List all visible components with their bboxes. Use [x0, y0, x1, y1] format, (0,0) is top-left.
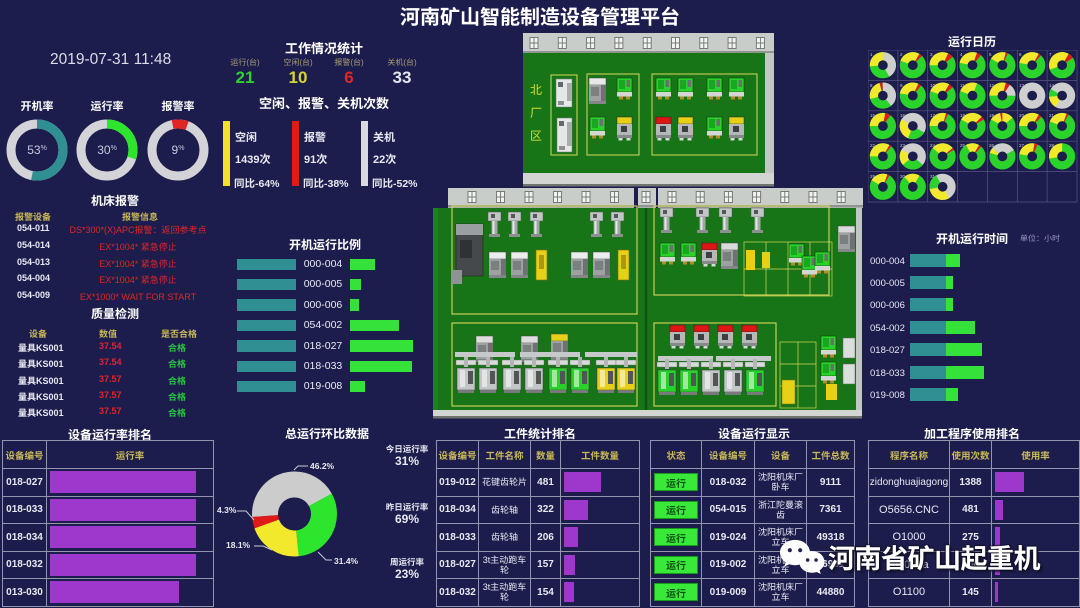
svg-text:21: 21 — [1049, 113, 1055, 118]
svg-text:24: 24 — [930, 143, 936, 148]
svg-text:9: 9 — [900, 83, 903, 88]
svg-text:12: 12 — [989, 83, 995, 88]
svg-text:2: 2 — [900, 52, 903, 57]
svg-text:10: 10 — [930, 83, 936, 88]
svg-text:7: 7 — [1049, 52, 1052, 57]
svg-text:4: 4 — [960, 52, 963, 57]
svg-text:厂: 厂 — [530, 106, 542, 120]
svg-text:北: 北 — [530, 83, 542, 97]
svg-text:区: 区 — [530, 129, 542, 143]
svg-text:5: 5 — [989, 52, 992, 57]
svg-text:13: 13 — [1019, 83, 1025, 88]
svg-text:11: 11 — [960, 83, 965, 88]
svg-text:25: 25 — [960, 143, 966, 148]
svg-text:3: 3 — [930, 52, 933, 57]
svg-text:17: 17 — [930, 113, 936, 118]
svg-text:6: 6 — [1019, 52, 1022, 57]
svg-text:27: 27 — [1019, 143, 1025, 148]
svg-text:31: 31 — [930, 174, 936, 179]
svg-text:30: 30 — [900, 174, 906, 179]
svg-text:28: 28 — [1049, 143, 1055, 148]
svg-text:20: 20 — [1019, 113, 1025, 118]
svg-text:26: 26 — [989, 143, 995, 148]
svg-text:18: 18 — [960, 113, 966, 118]
svg-text:19: 19 — [989, 113, 995, 118]
svg-text:23: 23 — [900, 143, 906, 148]
svg-text:16: 16 — [900, 113, 906, 118]
svg-text:14: 14 — [1049, 83, 1055, 88]
